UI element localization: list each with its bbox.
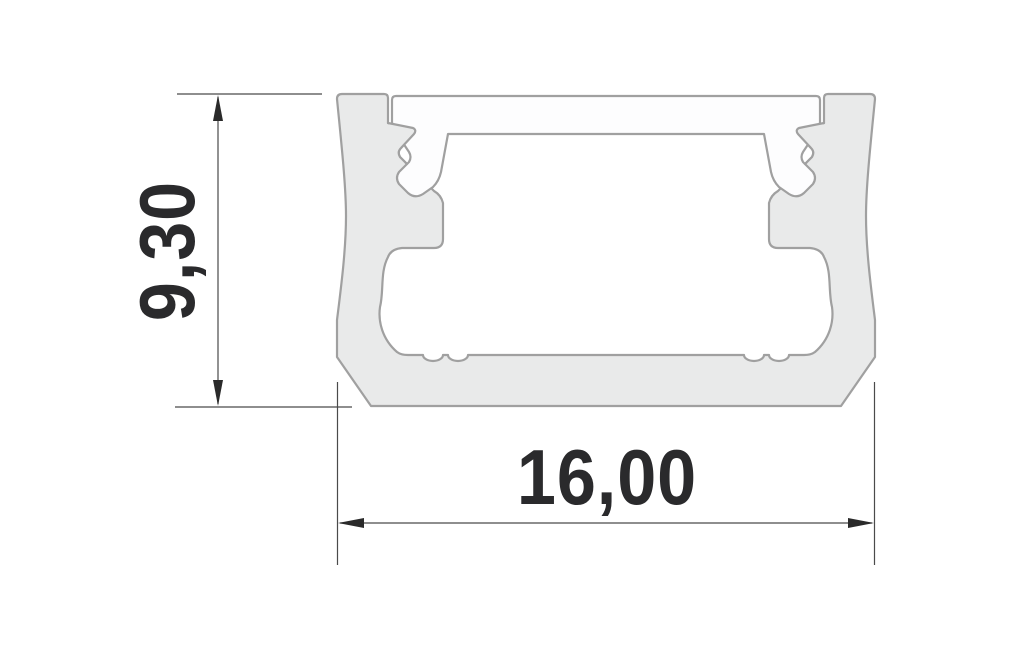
drawing-canvas: 9,30 16,00: [0, 0, 1020, 660]
width-dimension-label: 16,00: [517, 438, 697, 516]
width-arrow-right-icon: [848, 518, 874, 528]
height-arrow-up-icon: [213, 95, 223, 121]
height-dimension-label: 9,30: [128, 181, 206, 321]
height-arrow-down-icon: [213, 380, 223, 406]
width-arrow-left-icon: [338, 518, 364, 528]
profile-cover: [392, 96, 820, 196]
profile-drawing: [0, 0, 1020, 660]
